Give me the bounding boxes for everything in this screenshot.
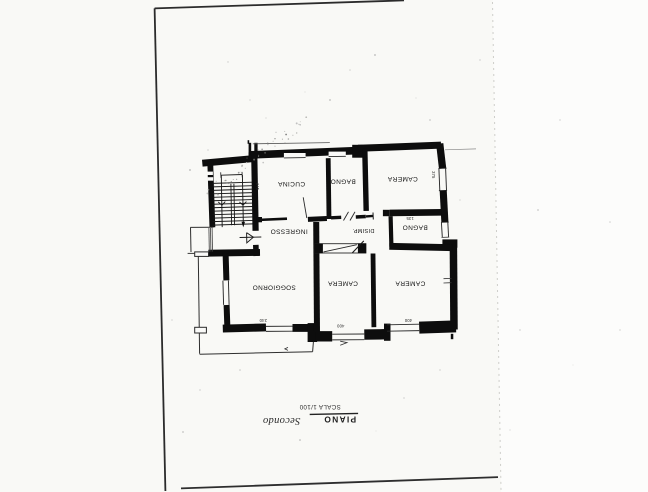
svg-text:135: 135 [406,216,414,221]
svg-text:CAMERA: CAMERA [387,175,417,182]
svg-text:400: 400 [336,323,344,328]
svg-text:BAGNO: BAGNO [402,224,427,231]
svg-text:INGRESSO: INGRESSO [270,228,308,235]
svg-text:240: 240 [259,318,267,323]
svg-text:Secondo: Secondo [263,415,301,426]
svg-text:CAMERA: CAMERA [395,280,425,287]
svg-text:CUCINA: CUCINA [277,180,305,187]
svg-text:DISIMP.: DISIMP. [352,227,374,233]
svg-text:245: 245 [256,183,261,190]
svg-text:PIANO: PIANO [323,414,356,424]
svg-text:SOGGIORNO: SOGGIORNO [252,283,295,290]
svg-text:375: 375 [431,171,436,179]
svg-text:400: 400 [404,318,412,323]
svg-text:CAMERA: CAMERA [327,279,357,286]
svg-text:SCALA 1/100: SCALA 1/100 [299,403,341,410]
svg-text:BAGNO: BAGNO [330,178,355,185]
